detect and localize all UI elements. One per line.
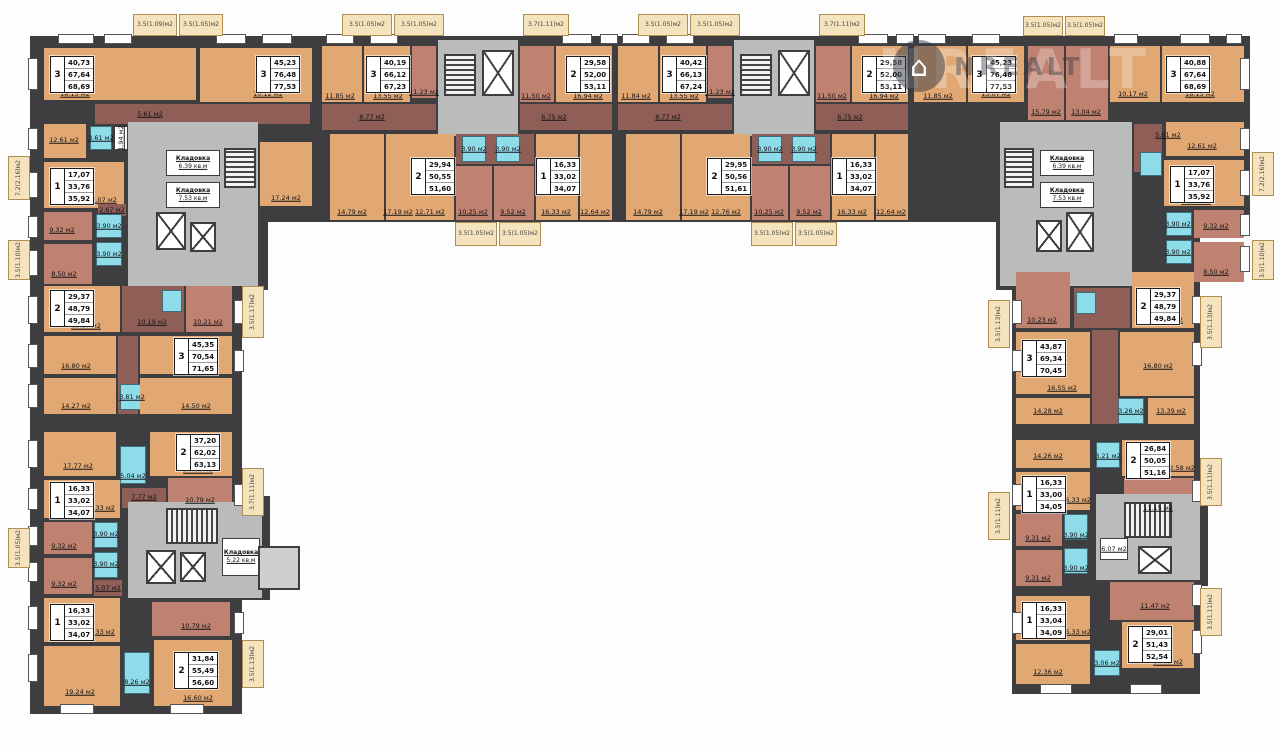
apartment-area-value: 35,92 (65, 193, 93, 204)
balcony-area-label: 3.5(1.05)м2 (697, 22, 733, 28)
balcony: 3.5(1.05)м2 (1065, 16, 1105, 36)
apartment-area-value: 40,73 (65, 57, 93, 69)
room-area-label: 3.90 м2 (461, 146, 487, 153)
apartment-area-value: 35,92 (1185, 191, 1213, 202)
apartment-area-value: 17,07 (65, 169, 93, 181)
room-area-label: 11.47 м2 (1140, 603, 1170, 610)
apartment-area-value: 70,54 (189, 351, 217, 363)
apartment-area-value: 69,34 (1037, 353, 1065, 365)
room-area-label: 12.71 м2 (415, 209, 445, 216)
room-area-label: 11.23 м2 (409, 89, 439, 96)
room-area-label: 11.15 м2 (1143, 505, 1173, 512)
balcony-area-label: 3.5(1.05)м2 (16, 530, 22, 566)
balcony-area-label: 3.5(1.10)м2 (16, 242, 22, 278)
apartment-area-value: 16,33 (847, 159, 875, 171)
room-area-label: 16.60 м2 (183, 695, 213, 702)
room-area-label: 3.90 м2 (495, 146, 521, 153)
apartment-area-value: 49,84 (65, 315, 93, 326)
apartment-room-count: 2 (1127, 443, 1141, 478)
apartment-area-value: 51,43 (1143, 639, 1171, 651)
apartment-area-value: 40,88 (1181, 57, 1209, 69)
stairs-icon (740, 54, 772, 96)
room-area-label: 9.32 м2 (49, 227, 75, 234)
room-area-label: 6.07 м2 (1101, 546, 1127, 553)
apartment-areas: 16,3333,0034,05 (1037, 477, 1065, 512)
apartment-areas: 45,2376,4877,53 (271, 57, 299, 92)
storage-area: 6.39 кв.м (176, 163, 210, 171)
room-area-label: 10.17 м2 (1118, 91, 1148, 98)
apartment-area-value: 16,33 (65, 483, 93, 495)
balcony: 3.5(1.05)м2 (795, 222, 837, 246)
apartment-info-box: 343,8769,3470,45 (1022, 340, 1066, 377)
room-area-label: 7.77 м2 (131, 494, 157, 501)
apartment-areas: 29,3748,7949,84 (1151, 289, 1179, 324)
room-area-label: 8.77 м2 (655, 114, 681, 121)
window (28, 488, 38, 510)
apartment-area-value: 48,79 (65, 303, 93, 315)
apartment-areas: 16,3333,0234,07 (65, 483, 93, 518)
window (170, 704, 204, 714)
room-area-label: 12.64 м2 (580, 209, 610, 216)
room-area-label: 9.32 м2 (1203, 223, 1229, 230)
balcony: 3.5(1.11)м2 (1200, 458, 1222, 506)
balcony: 3.5(1.05)м2 (751, 222, 793, 246)
apartment-area-value: 29,01 (1143, 627, 1171, 639)
apartment-info-box: 116,3333,0234,07 (832, 158, 876, 195)
apartment-info-box: 340,1966,1267,23 (366, 56, 410, 93)
apartment-info-box: 229,3748,7949,84 (1136, 288, 1180, 325)
balcony: 7.2(2.16)м2 (1252, 152, 1274, 196)
room-area-label: 3.90 м2 (93, 531, 119, 538)
apartment-area-value: 56,60 (189, 677, 217, 688)
apartment-area-value: 63,13 (191, 459, 219, 470)
apartment-area-value: 52,54 (1143, 651, 1171, 662)
room-area-label: 16.33 м2 (541, 209, 571, 216)
room-area-label: 12.36 м2 (1033, 669, 1063, 676)
window (918, 34, 946, 44)
apartment-room-count: 1 (537, 159, 551, 194)
balcony: 3.5(1.05)м2 (394, 14, 444, 36)
apartment-room-count: 1 (1171, 167, 1185, 202)
room-area-label: 3.06 м2 (1094, 660, 1120, 667)
apartment-info-box: 231,8455,4956,60 (174, 652, 218, 689)
balcony: 3.5(1.11)м2 (988, 492, 1010, 540)
window (1130, 684, 1162, 694)
apartment-areas: 29,9550,5651,61 (722, 159, 750, 194)
apartment-area-value: 67,64 (65, 69, 93, 81)
apartment-area-value: 55,49 (189, 665, 217, 677)
elevator-icon (190, 222, 216, 252)
apartment-area-value: 33,76 (1185, 179, 1213, 191)
elevator-icon (156, 212, 186, 250)
balcony-area-label: 3.5(1.05)м2 (401, 22, 437, 28)
apartment-area-value: 76,48 (271, 69, 299, 81)
balcony-area-label: 3.5(1.05)м2 (754, 231, 790, 237)
balcony: 3.5(1.13)м2 (242, 640, 264, 688)
apartment-area-value: 34,07 (847, 183, 875, 194)
balcony: 3.7(1.11)м2 (523, 14, 569, 36)
room-area-label: 3.90 м2 (1063, 565, 1089, 572)
balcony-area-label: 7.2(2.16)м2 (1260, 156, 1266, 192)
balcony: 3.5(1.05)м2 (690, 14, 740, 36)
room-area-label: 14.79 м2 (337, 209, 367, 216)
window (28, 296, 38, 324)
apartment-area-value: 68,69 (65, 81, 93, 92)
room-area-label: 13.39 м2 (1156, 408, 1186, 415)
apartment-areas: 43,8769,3470,45 (1037, 341, 1065, 376)
room-area-label: 9.52 м2 (796, 209, 822, 216)
window (58, 34, 94, 44)
apartment-area-value: 45,35 (189, 339, 217, 351)
apartment-room-count: 3 (1023, 341, 1037, 376)
room-area-label: 12.61 м2 (49, 137, 79, 144)
apartment-areas: 31,8455,4956,60 (189, 653, 217, 688)
apartment-room-count: 1 (51, 483, 65, 518)
window (234, 612, 244, 634)
apartment-area-value: 40,42 (677, 57, 705, 69)
elevator-icon (778, 50, 810, 96)
room-bedroom (44, 558, 92, 594)
elevator-icon (180, 552, 206, 582)
apartment-area-value: 48,79 (1151, 301, 1179, 313)
room-area-label: 3.90 м2 (93, 561, 119, 568)
apartment-area-value: 34,05 (1037, 501, 1065, 512)
window (600, 34, 618, 44)
room-area-label: 10.79 м2 (185, 497, 215, 504)
apartment-area-value: 34,07 (551, 183, 579, 194)
apartment-room-count: 3 (51, 57, 65, 92)
room-area-label: 5.04 м2 (120, 473, 146, 480)
room-area-label: 5.61 м2 (1155, 132, 1181, 139)
apartment-room-count: 1 (833, 159, 847, 194)
apartment-areas: 16,3333,0234,07 (65, 605, 93, 640)
storage-area: 7.53 кв.м (1050, 195, 1084, 203)
apartment-info-box: 345,2376,4877,53 (256, 56, 300, 93)
window (104, 34, 132, 44)
apartment-area-value: 33,02 (551, 171, 579, 183)
window (28, 128, 38, 150)
apartment-areas: 29,5852,0053,11 (581, 57, 609, 92)
room-area-label: 19.24 м2 (65, 689, 95, 696)
apartment-area-value: 76,48 (987, 69, 1015, 81)
apartment-area-value: 53,11 (581, 81, 609, 92)
room-area-label: 16.94 м2 (573, 93, 603, 100)
room-corridor (95, 104, 310, 124)
room-area-label: 16.80 м2 (1143, 363, 1173, 370)
apartment-areas: 16,3333,0234,07 (551, 159, 579, 194)
room-area-label: 6.75 м2 (541, 114, 567, 121)
apartment-room-count: 1 (1023, 477, 1037, 512)
room-bathroom (1076, 292, 1096, 314)
window (1180, 34, 1210, 44)
balcony-area-label: 3.7(1.11)м2 (250, 474, 256, 510)
storage-title: Кладовка (1050, 187, 1084, 195)
storage-area: 6.39 кв.м (1050, 163, 1084, 171)
balcony: 3.5(1.13)м2 (1200, 296, 1222, 348)
balcony-area-label: 3.5(1.13)м2 (1208, 304, 1214, 340)
apartment-area-value: 29,37 (65, 291, 93, 303)
apartment-area-value: 67,24 (677, 81, 705, 92)
apartment-area-value: 45,23 (987, 57, 1015, 69)
apartment-area-value: 51,61 (722, 183, 750, 194)
room-area-label: 5.07 м2 (95, 585, 121, 592)
window (1240, 214, 1250, 236)
apartment-area-value: 26,84 (1141, 443, 1169, 455)
apartment-area-value: 29,37 (1151, 289, 1179, 301)
apartment-area-value: 16,33 (1037, 477, 1065, 489)
apartment-areas: 29,9450,5551,60 (426, 159, 454, 194)
apartment-area-value: 33,00 (1037, 489, 1065, 501)
room-area-label: 10.79 м2 (181, 623, 211, 630)
apartment-area-value: 16,33 (65, 605, 93, 617)
room-area-label: 6.75 м2 (837, 114, 863, 121)
room-area-label: 8.50 м2 (1203, 269, 1229, 276)
room-area-label: 3.90 м2 (96, 223, 122, 230)
stairs-icon (444, 54, 476, 96)
room-area-label: 3.90 м2 (1165, 221, 1191, 228)
room-bathroom (1140, 152, 1162, 176)
apartment-info-box: 117,0733,7635,92 (1170, 166, 1214, 203)
apartment-info-box: 345,3570,5471,65 (174, 338, 218, 375)
room-area-label: 10.19 м2 (137, 319, 167, 326)
apartment-info-box: 340,8867,6468,69 (1166, 56, 1210, 93)
apartment-areas: 26,8450,0551,16 (1141, 443, 1169, 478)
apartment-room-count: 2 (175, 653, 189, 688)
room-area-label: 13.04 м2 (1071, 109, 1101, 116)
apartment-area-value: 62,02 (191, 447, 219, 459)
room-bedroom (152, 602, 230, 636)
apartment-areas: 37,2062,0263,13 (191, 435, 219, 470)
room-area-label: 9.52 м2 (500, 209, 526, 216)
room-area-label: 13.55 м2 (373, 93, 403, 100)
apartment-room-count: 1 (51, 169, 65, 204)
apartment-area-value: 50,05 (1141, 455, 1169, 467)
apartment-info-box: 116,3333,0234,07 (50, 482, 94, 519)
window (1240, 246, 1250, 272)
storage-title: Кладовка (176, 187, 210, 195)
balcony-area-label: 3.5(1.05)м2 (798, 231, 834, 237)
room-area-label: 11.50 м2 (521, 93, 551, 100)
window (1240, 58, 1250, 90)
apartment-area-value: 53,11 (877, 81, 905, 92)
balcony-area-label: 3.5(1.05)м2 (1067, 23, 1103, 29)
window (1240, 170, 1250, 196)
balcony: 3.5(1.05)м2 (342, 14, 392, 36)
apartment-area-value: 29,58 (581, 57, 609, 69)
apartment-info-box: 345,2376,4877,53 (972, 56, 1016, 93)
balcony-area-label: 7.2(2.16)м2 (16, 160, 22, 196)
apartment-info-box: 117,0733,7635,92 (50, 168, 94, 205)
room-area-label: 5.61 м2 (137, 111, 163, 118)
room-area-label: 9.32 м2 (51, 581, 77, 588)
balcony: 3.5(1.05)м2 (455, 222, 497, 246)
apartment-area-value: 33,04 (1037, 615, 1065, 627)
balcony: 3.5(1.10)м2 (1252, 240, 1274, 280)
apartment-info-box: 340,7367,6468,69 (50, 56, 94, 93)
apartment-area-value: 16,33 (551, 159, 579, 171)
storage-label: Кладовка7.53 кв.м (1050, 187, 1084, 203)
window (972, 34, 1000, 44)
balcony-area-label: 3.5(1.05)м2 (183, 22, 219, 28)
balcony-area-label: 3.5(1.05)м2 (645, 22, 681, 28)
room-area-label: 12.61 м2 (1187, 143, 1217, 150)
room-area-label: 3.90 м2 (757, 146, 783, 153)
balcony-area-label: 3.5(1.13)м2 (996, 306, 1002, 342)
room-bathroom (124, 652, 150, 694)
room-area-label: 8.77 м2 (359, 114, 385, 121)
balcony-area-label: 3.5(1.17)м2 (250, 294, 256, 330)
room-area-label: 3.21 м2 (1095, 453, 1121, 460)
apartment-room-count: 2 (567, 57, 581, 92)
room-area-label: 16.94 м2 (869, 93, 899, 100)
apartment-areas: 29,0151,4352,54 (1143, 627, 1171, 662)
apartment-room-count: 3 (663, 57, 677, 92)
apartment-room-count: 2 (51, 291, 65, 326)
apartment-info-box: 229,9450,5551,60 (411, 158, 455, 195)
room-living (44, 646, 120, 706)
balcony-area-label: 3.5(1.05)м2 (349, 22, 385, 28)
room-bathroom (162, 290, 182, 312)
apartment-area-value: 51,60 (426, 183, 454, 194)
apartment-info-box: 340,4266,1367,24 (662, 56, 706, 93)
apartment-areas: 40,8867,6468,69 (1181, 57, 1209, 92)
balcony: 3.5(1.11)м2 (1200, 588, 1222, 636)
apartment-info-box: 237,2062,0263,13 (176, 434, 220, 471)
window (28, 654, 38, 682)
room-area-label: 17.24 м2 (271, 195, 301, 202)
room-area-label: 9.31 м2 (1025, 535, 1051, 542)
apartment-area-value: 67,23 (381, 81, 409, 92)
apartment-info-box: 226,8450,0551,16 (1126, 442, 1170, 479)
apartment-area-value: 71,65 (189, 363, 217, 374)
balcony: 3.5(1.13)м2 (988, 300, 1010, 348)
apartment-room-count: 3 (257, 57, 271, 92)
window (1012, 484, 1022, 506)
apartment-area-value: 43,87 (1037, 341, 1065, 353)
apartment-room-count: 3 (175, 339, 189, 374)
apartment-area-value: 66,13 (677, 69, 705, 81)
balcony-area-label: 3.7(1.11)м2 (824, 22, 860, 28)
room-area-label: 17.77 м2 (63, 463, 93, 470)
apartment-info-box: 116,3333,0234,07 (50, 604, 94, 641)
apartment-info-box: 116,3333,0234,07 (536, 158, 580, 195)
balcony-area-label: 3.5(1.10)м2 (1260, 242, 1266, 278)
apartment-area-value: 77,53 (271, 81, 299, 92)
room-area-label: 13.55 м2 (669, 93, 699, 100)
apartment-area-value: 34,07 (65, 507, 93, 518)
room-area-label: 11.50 м2 (817, 93, 847, 100)
storage-label: Кладовка6.39 кв.м (176, 155, 210, 171)
apartment-area-value: 67,64 (1181, 69, 1209, 81)
room-area-label: 9.31 м2 (1025, 575, 1051, 582)
balcony-area-label: 3.7(1.11)м2 (528, 22, 564, 28)
room-area-label: 3.26 м2 (1118, 408, 1144, 415)
room-area-label: 14.27 м2 (61, 403, 91, 410)
room-living (1166, 122, 1244, 156)
window (234, 350, 244, 372)
room-area-label: 3.90 м2 (1063, 532, 1089, 539)
room-area-label: 3.61 м2 (88, 135, 114, 142)
apartment-area-value: 51,16 (1141, 467, 1169, 478)
apartment-area-value: 17,07 (1185, 167, 1213, 179)
apartment-info-box: 229,5852,0053,11 (862, 56, 906, 93)
room-area-label: 3.81 м2 (119, 394, 145, 401)
balcony-area-label: 3.5(1.05)м2 (502, 231, 538, 237)
balcony: 3.7(1.11)м2 (819, 14, 865, 36)
storage-label: Кладовка5.22 кв.м (224, 549, 258, 565)
balcony: 3.7(1.11)м2 (242, 468, 264, 516)
elevator-icon (1138, 546, 1172, 574)
storage-title: Кладовка (224, 549, 258, 557)
balcony-area-label: 3.5(1.13)м2 (250, 646, 256, 682)
storage-area: 7.53 кв.м (176, 195, 210, 203)
balcony-area-label: 3.5(1.11)м2 (1208, 594, 1214, 630)
apartment-area-value: 33,02 (65, 495, 93, 507)
apartment-area-value: 49,84 (1151, 313, 1179, 324)
apartment-info-box: 116,3333,0434,09 (1022, 602, 1066, 639)
room-area-label: 12.64 м2 (876, 209, 906, 216)
balcony: 3.5(1.17)м2 (242, 286, 264, 338)
balcony: 3.5(1.05)м2 (499, 222, 541, 246)
balcony: 3.5(1.05)м2 (1023, 16, 1063, 36)
window (1012, 300, 1022, 324)
window (1040, 684, 1072, 694)
apartment-area-value: 66,12 (381, 69, 409, 81)
apartment-areas: 16,3333,0434,09 (1037, 603, 1065, 638)
apartment-area-value: 33,02 (65, 617, 93, 629)
apartment-area-value: 29,95 (722, 159, 750, 171)
room-area-label: 11.84 м2 (621, 93, 651, 100)
balcony-area-label: 3.5(1.05)м2 (1025, 23, 1061, 29)
room-area-label: 8.50 м2 (51, 271, 77, 278)
room-area-label: 16.80 м2 (61, 363, 91, 370)
storage-title: Кладовка (176, 155, 210, 163)
room-area-label: 14.26 м2 (1033, 453, 1063, 460)
room-area-label: 3.90 м2 (1165, 249, 1191, 256)
room-area-label: 12.76 м2 (711, 209, 741, 216)
apartment-room-count: 2 (863, 57, 877, 92)
balcony: 3.5(1.05)м2 (638, 14, 688, 36)
apartment-room-count: 1 (1023, 603, 1037, 638)
room-area-label: 3.90 м2 (96, 251, 122, 258)
apartment-info-box: 116,3333,0034,05 (1022, 476, 1066, 513)
room-bedroom (1194, 242, 1244, 282)
balcony: 3.5(1.10)м2 (8, 240, 30, 280)
apartment-area-value: 31,84 (189, 653, 217, 665)
storage-area: 5.22 кв.м (224, 557, 258, 565)
floor-plan-canvas: 3.5(1.09)м23.5(1.05)м23.5(1.05)м23.5(1.0… (0, 0, 1280, 748)
apartment-info-box: 229,5852,0053,11 (566, 56, 610, 93)
apartment-areas: 29,3748,7949,84 (65, 291, 93, 326)
room-area-label: 11.23 м2 (705, 89, 735, 96)
apartment-area-value: 77,53 (987, 81, 1015, 92)
room-area-label: 3.90 м2 (791, 146, 817, 153)
apartment-areas: 16,3333,0234,07 (847, 159, 875, 194)
storage-label: Кладовка6.39 кв.м (1050, 155, 1084, 171)
entrance-porch (258, 546, 300, 590)
apartment-room-count: 3 (1167, 57, 1181, 92)
stairs-icon (1004, 148, 1034, 188)
window (28, 344, 38, 368)
room-area-label: 16.33 м2 (837, 209, 867, 216)
stairs-icon (224, 148, 256, 188)
apartment-areas: 17,0733,7635,92 (65, 169, 93, 204)
balcony-area-label: 3.5(1.05)м2 (458, 231, 494, 237)
window (1226, 34, 1242, 44)
apartment-areas: 45,3570,5471,65 (189, 339, 217, 374)
apartment-area-value: 33,02 (847, 171, 875, 183)
apartment-info-box: 229,0151,4352,54 (1128, 626, 1172, 663)
